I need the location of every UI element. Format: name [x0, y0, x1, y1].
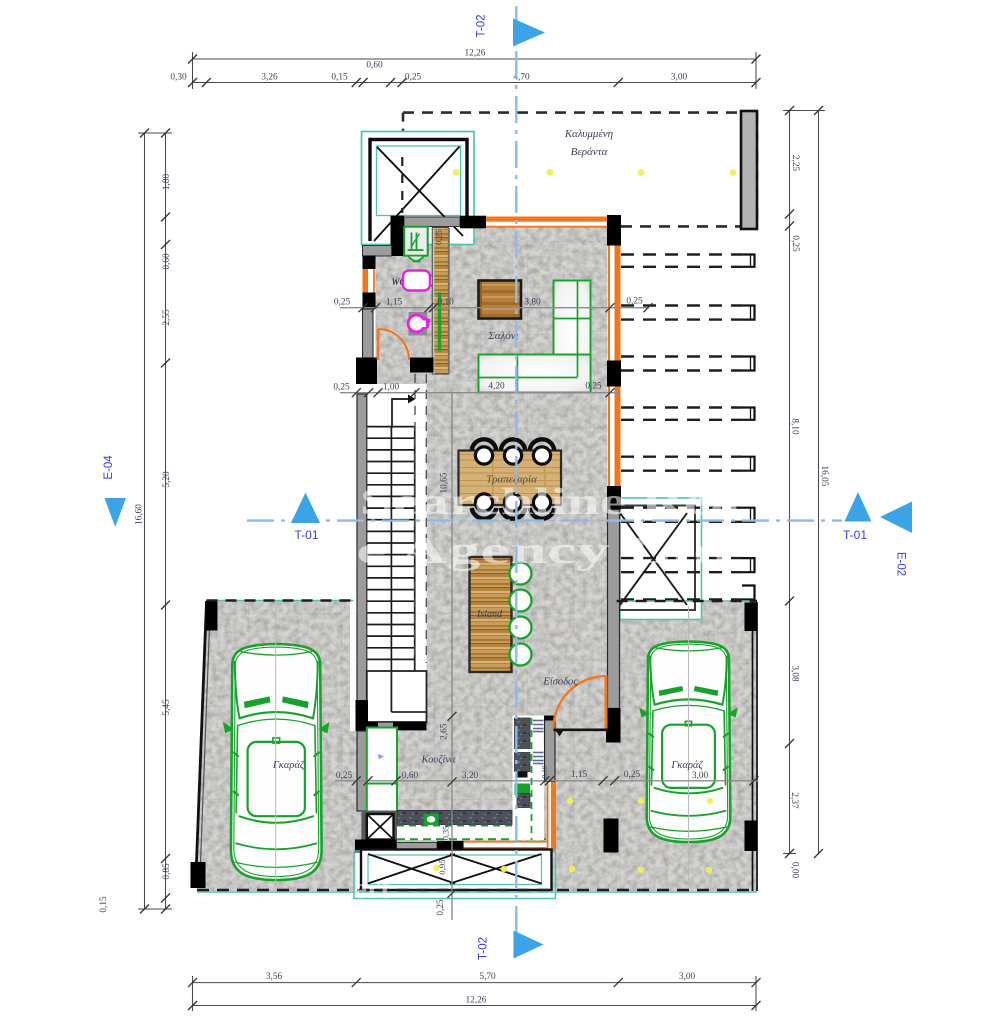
- svg-text:0,60: 0,60: [162, 253, 172, 270]
- svg-text:0,25: 0,25: [405, 73, 422, 83]
- svg-text:0,25: 0,25: [336, 771, 353, 781]
- svg-text:1,15: 1,15: [571, 770, 588, 780]
- svg-text:0,25: 0,25: [436, 899, 446, 916]
- svg-text:12,26: 12,26: [465, 49, 486, 59]
- svg-text:16,05: 16,05: [819, 466, 829, 487]
- svg-text:10,65: 10,65: [440, 472, 450, 493]
- svg-text:0,25: 0,25: [435, 230, 444, 245]
- svg-text:3,00: 3,00: [679, 972, 696, 982]
- svg-text:0,10: 0,10: [540, 765, 549, 778]
- svg-text:8,10: 8,10: [790, 418, 800, 435]
- svg-text:Κουζίνα: Κουζίνα: [420, 755, 456, 766]
- svg-text:PBOX Searchline Rea: PBOX Searchline Rea: [180, 481, 740, 523]
- svg-text:E-04: E-04: [103, 455, 115, 480]
- svg-text:0,95: 0,95: [437, 859, 447, 875]
- svg-text:0,30: 0,30: [170, 73, 187, 83]
- svg-text:0,25: 0,25: [624, 770, 641, 780]
- svg-text:0,25: 0,25: [790, 235, 800, 252]
- svg-text:lEstate Agency Ltd: lEstate Agency Ltd: [190, 530, 730, 572]
- svg-text:T-02: T-02: [476, 14, 488, 37]
- svg-text:2,65: 2,65: [440, 723, 450, 740]
- svg-text:5,70: 5,70: [479, 972, 496, 982]
- svg-text:3,20: 3,20: [462, 771, 479, 781]
- svg-text:0,25: 0,25: [333, 383, 350, 393]
- svg-text:0,85: 0,85: [162, 863, 172, 880]
- svg-text:3,26: 3,26: [261, 73, 278, 83]
- svg-text:0,60: 0,60: [366, 61, 383, 71]
- svg-text:1,00: 1,00: [383, 383, 400, 393]
- svg-text:0,25: 0,25: [334, 298, 351, 308]
- svg-text:3,80: 3,80: [524, 298, 541, 308]
- svg-text:Καλυμμένη: Καλυμμένη: [564, 128, 613, 140]
- svg-text:Είσοδος: Είσοδος: [542, 677, 578, 688]
- svg-text:Σαλόνι: Σαλόνι: [487, 330, 519, 342]
- svg-text:3,56: 3,56: [266, 972, 283, 982]
- svg-text:1,80: 1,80: [162, 174, 172, 191]
- svg-text:12,26: 12,26: [466, 995, 487, 1005]
- svg-text:Island: Island: [476, 609, 503, 620]
- svg-text:2,37: 2,37: [789, 792, 799, 809]
- svg-text:0,15: 0,15: [99, 896, 109, 913]
- svg-text:0,35: 0,35: [442, 826, 451, 840]
- svg-text:0,25: 0,25: [626, 297, 643, 307]
- svg-text:0,60: 0,60: [402, 771, 419, 781]
- svg-text:3,00: 3,00: [692, 771, 709, 781]
- svg-text:Βεράντα: Βεράντα: [571, 146, 608, 158]
- svg-text:4,20: 4,20: [488, 382, 505, 392]
- svg-text:5,20: 5,20: [162, 471, 172, 488]
- svg-text:0,00: 0,00: [790, 862, 800, 879]
- svg-text:Γκαράζ: Γκαράζ: [272, 760, 305, 771]
- svg-text:0,15: 0,15: [331, 73, 348, 83]
- svg-text:T-02: T-02: [478, 937, 490, 960]
- svg-text:0,25: 0,25: [585, 382, 602, 392]
- svg-text:5,45: 5,45: [162, 699, 172, 716]
- svg-text:0,10: 0,10: [438, 298, 455, 308]
- svg-text:1,15: 1,15: [386, 298, 403, 308]
- svg-text:ert: ert: [354, 872, 391, 905]
- svg-text:3,08: 3,08: [790, 665, 800, 682]
- svg-text:T-01: T-01: [294, 528, 318, 542]
- svg-text:2,25: 2,25: [790, 155, 800, 172]
- svg-text:E-02: E-02: [895, 552, 907, 576]
- svg-text:3,00: 3,00: [671, 73, 688, 83]
- svg-text:T-01: T-01: [843, 528, 867, 542]
- svg-text:Γκαράζ: Γκαράζ: [670, 760, 703, 771]
- svg-text:2,55: 2,55: [162, 309, 172, 326]
- svg-text:16,60: 16,60: [135, 504, 145, 525]
